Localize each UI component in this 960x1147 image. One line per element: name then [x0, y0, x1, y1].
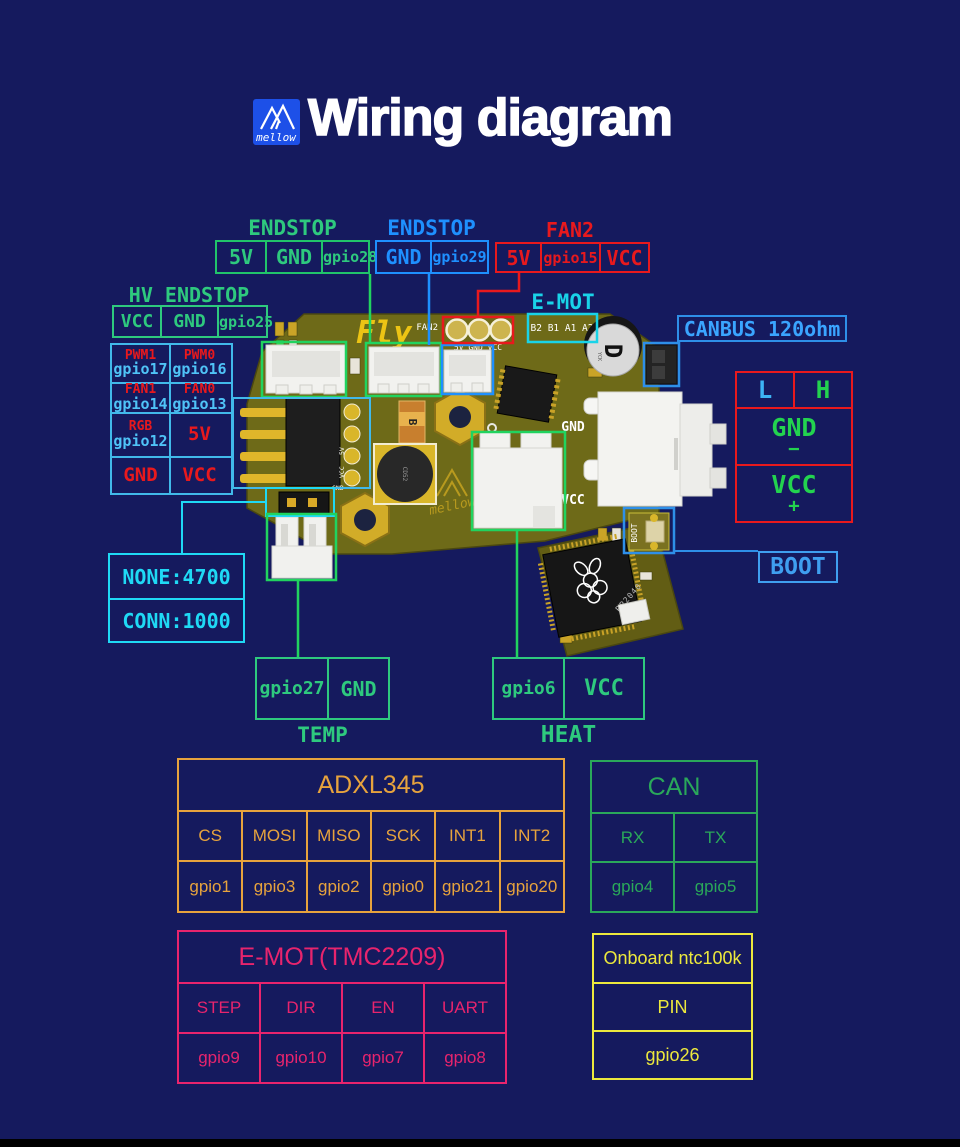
svg-text:B: B	[406, 419, 419, 426]
svg-text:VCC: VCC	[338, 466, 346, 478]
can-table: CAN RX TX gpio4 gpio5	[590, 760, 758, 913]
endstop-connector-b	[444, 350, 491, 392]
hv-endstop-title: HV ENDSTOP	[110, 283, 268, 307]
adxl345-title: ADXL345	[179, 760, 563, 812]
emot-driver-title: E-MOT(TMC2209)	[179, 932, 505, 984]
can-transceiver-chip	[495, 366, 558, 423]
svg-text:CD52: CD52	[401, 467, 408, 482]
endstop-b-table: GND gpio29	[375, 240, 489, 274]
table-row: RGBgpio12 5V	[112, 412, 231, 456]
endstop-connector-a	[369, 347, 439, 393]
inductor: CD52	[374, 444, 436, 504]
table-row: Onboard ntc100k	[594, 935, 751, 982]
hv-in-connector	[266, 345, 346, 394]
table-row: gpio4 gpio5	[592, 861, 756, 911]
adxl345-table: ADXL345 CS MOSI MISO SCK INT1 INT2 gpio1…	[177, 758, 565, 913]
table-row: PIN	[594, 982, 751, 1030]
table-row: RX TX	[592, 814, 756, 861]
emot-silkscreen: B2 B1 A1 A2	[531, 323, 594, 334]
fan2-pads	[447, 320, 512, 341]
hv-endstop-table: VCC GND gpio25	[112, 305, 268, 338]
fan2-table: 5V gpio15 VCC	[495, 242, 650, 273]
table-row: gpio1 gpio3 gpio2 gpio0 gpio21 gpio20	[179, 860, 563, 911]
table-row: FAN1gpio14 FAN0gpio13	[112, 382, 231, 412]
table-row: GND VCC	[112, 456, 231, 493]
emot-probe-title: E-MOT	[528, 290, 598, 314]
svg-text:5V: 5V	[338, 447, 346, 455]
power-connector	[584, 392, 726, 506]
table-row: STEP DIR EN UART	[179, 984, 505, 1032]
svg-text:YCK: YCK	[596, 352, 602, 361]
pcb-brand-text: Fly	[356, 315, 413, 351]
can-port-table: L H GND− VCC+	[735, 371, 853, 523]
can-title: CAN	[592, 762, 756, 814]
thermistor-jumper-block	[279, 492, 329, 514]
canbus-jumper	[646, 345, 677, 384]
wiring-diagram-page: mellow Fly FAN2 5V GND VCC	[0, 0, 960, 1147]
table-row: VCC+	[737, 464, 851, 521]
table-row: gpio26	[594, 1030, 751, 1078]
svg-text:BOOT: BOOT	[630, 523, 639, 542]
emot-driver-table: E-MOT(TMC2209) STEP DIR EN UART gpio9 gp…	[177, 930, 507, 1084]
table-row: CONN:1000	[110, 598, 243, 641]
table-row: gpio9 gpio10 gpio7 gpio8	[179, 1032, 505, 1082]
temp-label: TEMP	[255, 723, 390, 747]
ntc-table: Onboard ntc100k PIN gpio26	[592, 933, 753, 1080]
table-row: GND−	[737, 409, 851, 464]
fan2-title: FAN2	[495, 218, 645, 242]
heat-label: HEAT	[492, 722, 645, 748]
thermistor-jumper-table: NONE:4700 CONN:1000	[108, 553, 245, 643]
canbus-label-box: CANBUS 120ohm	[677, 315, 847, 342]
boot-label-box: BOOT	[758, 551, 838, 583]
endstop-a-table: 5V GND gpio28	[215, 240, 370, 274]
table-row: L H	[737, 373, 851, 409]
tantalum-capacitor: B	[399, 401, 425, 443]
table-row: NONE:4700	[110, 555, 243, 598]
boot-button: BOOT	[629, 513, 669, 550]
electrolytic-capacitor: D YCK	[584, 316, 642, 376]
io-matrix-table: PWM1gpio17 PWM0gpio16 FAN1gpio14 FAN0gpi…	[110, 343, 233, 495]
table-row: CS MOSI MISO SCK INT1 INT2	[179, 812, 563, 860]
table-row: PWM1gpio17 PWM0gpio16	[112, 345, 231, 382]
svg-text:D: D	[599, 344, 627, 358]
wire-fan2	[478, 273, 519, 317]
fan2-silkscreen: FAN2	[416, 323, 438, 333]
temp-table: gpio27 GND	[255, 657, 390, 720]
endstop-b-title: ENDSTOP	[373, 216, 490, 240]
endstop-a-title: ENDSTOP	[215, 216, 370, 240]
heat-table: gpio6 VCC	[492, 657, 645, 720]
